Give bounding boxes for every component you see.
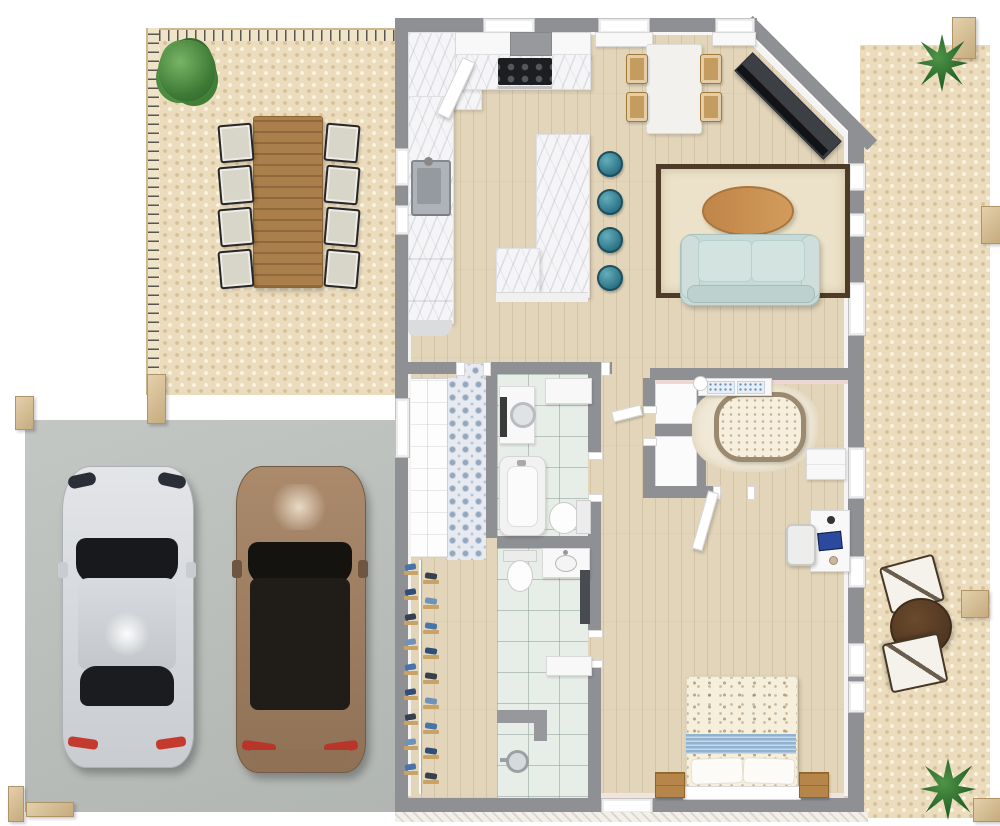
shoe-shelf [423, 605, 439, 609]
bed-headboard [683, 786, 801, 800]
wall-north [395, 18, 757, 32]
shoe-shelf [423, 655, 439, 659]
shoe-rack-divider [419, 560, 421, 794]
changing-table [698, 378, 772, 396]
shoe-shelf [404, 696, 418, 700]
changing-pad [737, 381, 765, 394]
shoe [425, 722, 438, 730]
patio-door [848, 282, 866, 336]
outdoor-chair [217, 165, 254, 206]
shoe-shelf [423, 755, 439, 759]
sofa-cushion [698, 240, 752, 282]
shoe-shelf [404, 646, 418, 650]
sofa-backrest [687, 285, 815, 303]
window [848, 163, 866, 191]
nursery-closet-nook [655, 436, 697, 488]
wall-bath-divider [497, 536, 588, 548]
desk-chair [786, 524, 816, 566]
brown-suv [236, 466, 364, 771]
shower-arm [500, 758, 508, 762]
shoe [405, 638, 417, 646]
wall-panel [580, 570, 590, 624]
shoe-rack [404, 560, 440, 794]
shoe [425, 747, 438, 755]
car-tailgate [250, 750, 350, 766]
shoe [405, 763, 417, 771]
outdoor-dining-chairs [219, 124, 359, 294]
outdoor-chair [323, 165, 360, 206]
shoe-shelf [423, 780, 439, 784]
nightstand [799, 772, 829, 798]
nursery-closet-nook [655, 378, 697, 424]
dining-chair [626, 54, 648, 84]
bath-wall-cabinet [545, 378, 592, 404]
cabinet-seam [408, 258, 452, 260]
door-frame [588, 452, 603, 460]
wood-post [147, 374, 166, 424]
outdoor-chair [217, 249, 254, 290]
shoe [425, 672, 438, 680]
shoe-shelf [404, 596, 418, 600]
bed-accent-band [686, 734, 796, 754]
door-frame [643, 438, 657, 446]
door-frame [483, 362, 491, 376]
kitchen-island-foot [496, 248, 540, 298]
coffee-table [702, 186, 794, 236]
shoe-shelf [423, 630, 439, 634]
window [395, 398, 410, 458]
bed-pillow [743, 757, 796, 785]
window [848, 447, 866, 499]
door-frame [747, 486, 755, 500]
wall-nursery-west [643, 378, 655, 406]
shoe [405, 688, 417, 696]
dining-chair [700, 92, 722, 122]
bar-stool [597, 265, 623, 291]
bar-stool [597, 189, 623, 215]
sink-faucet [424, 157, 433, 166]
crib [714, 392, 806, 462]
shoe [425, 597, 438, 605]
bathtub-basin [507, 466, 538, 527]
sofa [680, 234, 820, 306]
window [848, 681, 866, 713]
side-patio [860, 45, 990, 818]
bed-pillow [691, 757, 744, 785]
shower-head [506, 750, 529, 773]
kitchen-island-main [536, 134, 590, 298]
outdoor-chair [323, 249, 360, 290]
door-frame [588, 630, 603, 638]
shoe [405, 613, 417, 621]
shower-bench [546, 656, 592, 676]
washer-door [510, 402, 536, 428]
toilet [507, 560, 533, 592]
desk-lamp [827, 516, 835, 524]
floorplan-stage [0, 0, 1000, 826]
shoe [405, 563, 417, 571]
car-rear-window [80, 666, 174, 706]
car-mirror [186, 562, 196, 578]
shoe-shelf [423, 705, 439, 709]
changing-pad [707, 381, 735, 394]
cabinet-seam [408, 214, 452, 216]
bar-stools [597, 151, 619, 301]
bar-stool [597, 227, 623, 253]
counter-end-cap [408, 320, 452, 336]
outdoor-chair [217, 123, 254, 164]
wood-post [981, 206, 1000, 244]
shoe-shelf [404, 771, 418, 775]
shoe [405, 713, 417, 721]
door-frame [601, 362, 610, 376]
toilet [549, 502, 579, 534]
window-sill [595, 32, 653, 47]
shower-half-wall [497, 710, 547, 723]
silver-sedan [62, 466, 192, 766]
sink-basin [417, 168, 441, 204]
shoe-shelf [404, 721, 418, 725]
range-hood [510, 32, 552, 56]
outdoor-chair [323, 123, 360, 164]
dining-chair [626, 92, 648, 122]
toilet-tank [576, 500, 591, 534]
oven-handle [498, 86, 552, 89]
cabinet-seam [408, 300, 452, 302]
door-frame [456, 362, 465, 376]
wall-hall-a1 [408, 362, 458, 374]
shoe [425, 647, 438, 655]
window [848, 643, 866, 677]
window [848, 556, 866, 588]
bar-stool [597, 151, 623, 177]
shoe [425, 697, 438, 705]
cooktop [498, 58, 552, 85]
outdoor-chair [217, 207, 254, 248]
wood-post [15, 396, 34, 430]
nursery-hamper [693, 376, 708, 391]
wood-post [961, 590, 989, 618]
shoe-shelf [404, 571, 418, 575]
bathtub [499, 456, 546, 536]
shoe-shelf [423, 580, 439, 584]
wood-post [8, 786, 24, 822]
shoe-shelf [423, 730, 439, 734]
wall-bath-east [588, 666, 601, 798]
shoe-shelf [423, 680, 439, 684]
wood-post [973, 798, 1000, 822]
dining-chair [700, 54, 722, 84]
island-base [496, 292, 588, 302]
wood-post [26, 802, 74, 817]
shoe [425, 572, 438, 580]
tub-faucet [517, 460, 526, 466]
linen-closet [408, 378, 448, 558]
shoe [425, 622, 438, 630]
vanity-faucet [563, 550, 568, 555]
deck-plant [158, 40, 216, 102]
washer-control-strip [500, 397, 507, 437]
car-hood-shine [264, 484, 334, 530]
shoe-shelf [404, 621, 418, 625]
car-roof-shine [100, 612, 154, 656]
nursery-dresser [806, 448, 846, 480]
wall-nursery-west [643, 444, 655, 488]
washing-machine [499, 386, 535, 444]
desk-mug [829, 556, 838, 565]
wall-closet-bath [486, 374, 497, 538]
car-mirror [358, 560, 368, 578]
shoe [405, 588, 417, 596]
car-mirror [58, 562, 68, 578]
shoe-shelf [404, 746, 418, 750]
window-sill [712, 32, 756, 46]
dining-chairs [626, 54, 720, 120]
car-roof-glass [250, 578, 350, 710]
window [848, 213, 866, 237]
nightstand [655, 772, 685, 798]
shoe-shelf [404, 671, 418, 675]
car-mirror [232, 560, 242, 578]
sofa-cushion [751, 240, 805, 282]
shoe [405, 663, 417, 671]
mudroom-floor [446, 378, 486, 560]
laptop [817, 531, 843, 551]
deck-railing-west [146, 28, 159, 395]
shower-half-wall [534, 723, 547, 741]
outdoor-chair [323, 207, 360, 248]
shoe [405, 738, 417, 746]
shoe [425, 772, 438, 780]
foundation-strip [395, 812, 868, 822]
wall-hall-a3 [488, 362, 612, 374]
sink-bowl [555, 555, 577, 572]
wall-closet-divider [655, 424, 697, 436]
door-frame [643, 406, 657, 414]
